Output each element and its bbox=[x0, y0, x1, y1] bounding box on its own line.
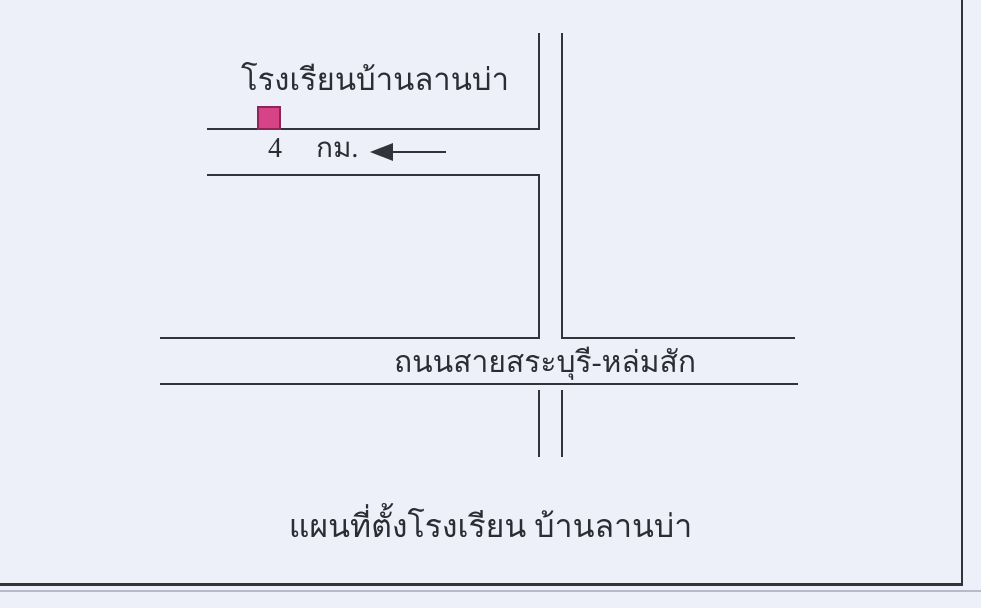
main-road-upper-line-right bbox=[561, 337, 795, 339]
distance-unit-label: กม. bbox=[316, 133, 358, 165]
map-caption: แผนที่ตั้งโรงเรียน บ้านลานบ่า bbox=[0, 508, 981, 545]
road-name-label: ถนนสายสระบุรี-หล่มสัก bbox=[394, 346, 696, 381]
left-arrow-head bbox=[370, 143, 393, 161]
vertical-road-left-line-middle bbox=[538, 176, 540, 338]
distance-value-label: 4 bbox=[268, 133, 282, 165]
vertical-road-left-line-lower bbox=[538, 390, 540, 457]
main-road-lower-line bbox=[160, 383, 798, 385]
vertical-road-left-line-upper bbox=[538, 33, 540, 130]
school-road-lower-line bbox=[207, 174, 540, 176]
vertical-road-right-line-upper bbox=[561, 33, 563, 339]
left-arrow-icon bbox=[370, 143, 446, 161]
vertical-road-right-line-lower bbox=[561, 390, 563, 457]
map-canvas: โรงเรียนบ้านลานบ่า 4 กม. ถนนสายสระบุรี-ห… bbox=[0, 0, 981, 608]
left-arrow-shaft bbox=[391, 151, 446, 153]
scan-edge-line bbox=[0, 590, 981, 592]
main-road-upper-line-left bbox=[160, 337, 540, 339]
school-marker bbox=[257, 106, 281, 130]
school-name-label: โรงเรียนบ้านลานบ่า bbox=[241, 62, 509, 98]
frame-right-border bbox=[961, 0, 963, 585]
frame-bottom-border bbox=[0, 583, 963, 586]
